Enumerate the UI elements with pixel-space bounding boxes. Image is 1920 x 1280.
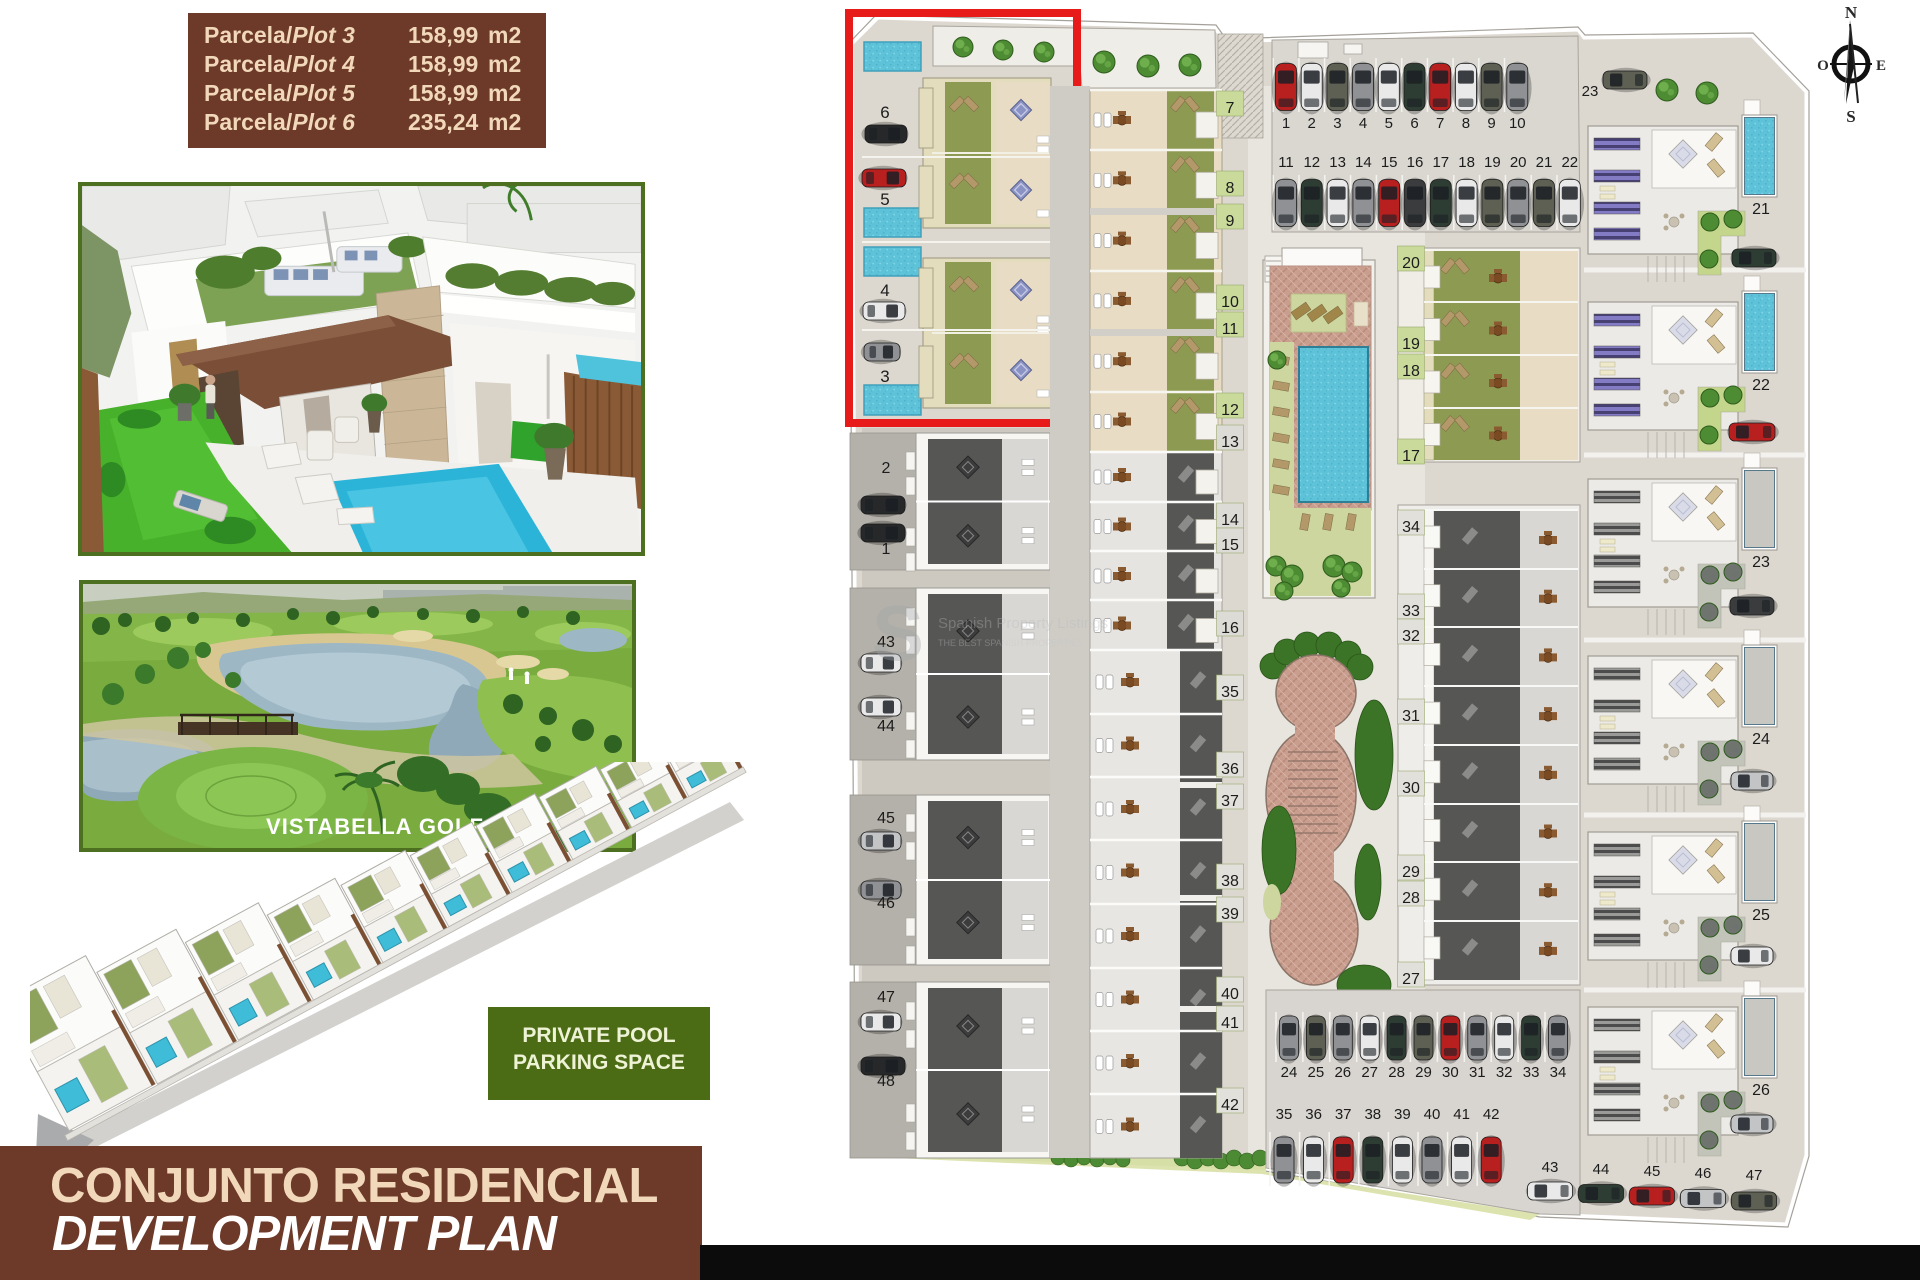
svg-text:34: 34 (1402, 519, 1420, 536)
svg-text:44: 44 (877, 718, 895, 735)
svg-text:29: 29 (1402, 864, 1420, 881)
svg-text:23: 23 (1752, 554, 1770, 571)
svg-text:33: 33 (1523, 1064, 1540, 1081)
svg-text:30: 30 (1442, 1064, 1459, 1081)
svg-text:31: 31 (1402, 708, 1420, 725)
svg-text:40: 40 (1221, 986, 1239, 1003)
svg-text:S: S (1846, 107, 1855, 126)
svg-text:22: 22 (1561, 154, 1578, 171)
svg-text:21: 21 (1752, 201, 1770, 218)
svg-text:34: 34 (1550, 1064, 1567, 1081)
svg-text:16: 16 (1407, 154, 1424, 171)
svg-text:30: 30 (1402, 780, 1420, 797)
svg-text:11: 11 (1222, 321, 1239, 338)
svg-text:2: 2 (882, 460, 891, 477)
svg-text:36: 36 (1221, 761, 1239, 778)
svg-text:20: 20 (1510, 154, 1527, 171)
svg-text:46: 46 (877, 895, 895, 912)
svg-text:42: 42 (1221, 1097, 1239, 1114)
svg-text:16: 16 (1221, 620, 1239, 637)
svg-text:17: 17 (1432, 154, 1449, 171)
svg-text:24: 24 (1281, 1064, 1298, 1081)
svg-text:4: 4 (880, 281, 889, 300)
svg-text:45: 45 (1644, 1163, 1661, 1180)
svg-text:5: 5 (1385, 115, 1393, 132)
svg-text:20: 20 (1402, 255, 1420, 272)
svg-text:3: 3 (880, 367, 889, 386)
svg-text:39: 39 (1221, 906, 1239, 923)
svg-text:6: 6 (1410, 115, 1418, 132)
svg-text:28: 28 (1388, 1064, 1405, 1081)
svg-text:S: S (872, 589, 924, 677)
svg-text:9: 9 (1226, 213, 1235, 230)
svg-text:11: 11 (1278, 154, 1294, 171)
svg-text:3: 3 (1333, 115, 1341, 132)
svg-text:12: 12 (1303, 154, 1320, 171)
svg-text:19: 19 (1402, 336, 1420, 353)
svg-text:2: 2 (1308, 115, 1316, 132)
svg-text:1: 1 (882, 541, 891, 558)
svg-text:31: 31 (1469, 1064, 1486, 1081)
svg-text:15: 15 (1381, 154, 1398, 171)
svg-text:13: 13 (1329, 154, 1346, 171)
svg-text:Spanish Property Listings: Spanish Property Listings (938, 615, 1108, 632)
svg-text:4: 4 (1359, 115, 1367, 132)
svg-text:N: N (1845, 3, 1858, 22)
svg-text:1: 1 (1282, 115, 1290, 132)
svg-text:E: E (1876, 58, 1886, 74)
svg-text:22: 22 (1752, 377, 1770, 394)
svg-text:25: 25 (1308, 1064, 1325, 1081)
svg-text:32: 32 (1496, 1064, 1513, 1081)
svg-text:18: 18 (1402, 363, 1420, 380)
svg-text:8: 8 (1226, 180, 1235, 197)
svg-text:38: 38 (1221, 873, 1239, 890)
svg-text:48: 48 (877, 1073, 895, 1090)
svg-text:47: 47 (877, 989, 895, 1006)
svg-text:19: 19 (1484, 154, 1501, 171)
svg-text:26: 26 (1334, 1064, 1351, 1081)
svg-text:18: 18 (1458, 154, 1475, 171)
svg-text:36: 36 (1305, 1106, 1322, 1123)
svg-text:32: 32 (1402, 628, 1420, 645)
svg-text:35: 35 (1221, 684, 1239, 701)
svg-text:O: O (1817, 58, 1829, 74)
svg-text:THE BEST SPANISH PROPERTIES: THE BEST SPANISH PROPERTIES (938, 638, 1084, 648)
svg-text:7: 7 (1226, 100, 1235, 117)
svg-text:35: 35 (1276, 1106, 1293, 1123)
svg-text:41: 41 (1221, 1015, 1239, 1032)
svg-text:33: 33 (1402, 603, 1420, 620)
svg-text:8: 8 (1462, 115, 1470, 132)
svg-text:44: 44 (1593, 1161, 1610, 1178)
svg-text:47: 47 (1746, 1167, 1763, 1184)
svg-text:10: 10 (1509, 115, 1526, 132)
svg-text:6: 6 (880, 103, 889, 122)
svg-text:17: 17 (1402, 448, 1420, 465)
svg-text:42: 42 (1483, 1106, 1500, 1123)
svg-text:14: 14 (1355, 154, 1372, 171)
svg-text:41: 41 (1453, 1106, 1470, 1123)
svg-text:12: 12 (1221, 402, 1239, 419)
svg-text:13: 13 (1221, 434, 1239, 451)
svg-text:37: 37 (1335, 1106, 1352, 1123)
svg-text:37: 37 (1221, 793, 1239, 810)
svg-text:25: 25 (1752, 907, 1770, 924)
svg-text:39: 39 (1394, 1106, 1411, 1123)
svg-text:27: 27 (1402, 971, 1420, 988)
svg-text:9: 9 (1487, 115, 1495, 132)
svg-text:27: 27 (1361, 1064, 1378, 1081)
svg-text:24: 24 (1752, 731, 1770, 748)
svg-text:15: 15 (1221, 537, 1239, 554)
svg-text:26: 26 (1752, 1082, 1770, 1099)
svg-text:38: 38 (1364, 1106, 1381, 1123)
svg-text:45: 45 (877, 810, 895, 827)
svg-text:46: 46 (1695, 1165, 1712, 1182)
svg-text:40: 40 (1424, 1106, 1441, 1123)
svg-text:43: 43 (1542, 1159, 1559, 1176)
svg-text:7: 7 (1436, 115, 1444, 132)
svg-text:29: 29 (1415, 1064, 1432, 1081)
svg-text:28: 28 (1402, 890, 1420, 907)
svg-text:14: 14 (1221, 512, 1239, 529)
svg-text:5: 5 (880, 190, 889, 209)
svg-text:23: 23 (1582, 83, 1599, 100)
svg-text:21: 21 (1536, 154, 1553, 171)
svg-text:10: 10 (1221, 294, 1239, 311)
